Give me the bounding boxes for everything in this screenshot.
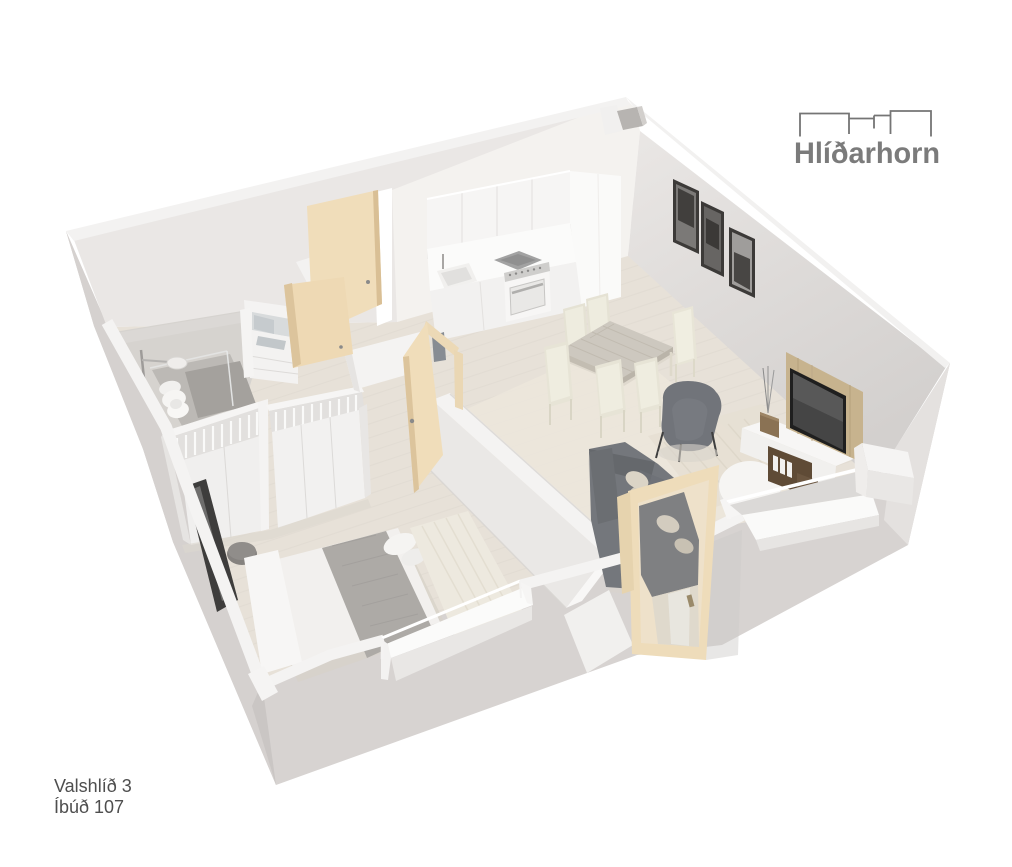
svg-text:Íbúð 107: Íbúð 107 [54,797,124,817]
svg-text:Valshlíð 3: Valshlíð 3 [54,776,132,796]
svg-text:Hlíðarhorn: Hlíðarhorn [794,137,940,170]
